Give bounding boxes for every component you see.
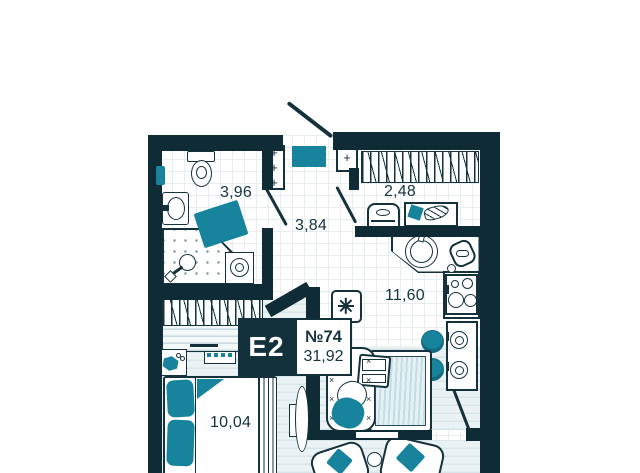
bathroom-sink-tap xyxy=(162,205,169,211)
blanket-fold xyxy=(197,379,224,399)
bed-footboard xyxy=(258,377,277,473)
kitchen-sink-inner xyxy=(410,240,433,263)
floor-plan: + + + + × × × × xyxy=(0,0,640,473)
burner-large xyxy=(448,292,464,308)
bedroom-area-label: 10,04 xyxy=(210,414,251,432)
toilet-bowl-inner xyxy=(196,166,207,179)
tv xyxy=(295,386,309,452)
hallway-area-label: 3,84 xyxy=(295,217,327,235)
balcony-wall-b xyxy=(398,430,432,440)
balcony-wall-a xyxy=(306,430,356,440)
stove-knobs xyxy=(447,285,449,294)
wall-right xyxy=(480,135,500,473)
bathroom-sink-basin xyxy=(167,197,185,220)
unit-type-badge: E2 xyxy=(238,318,295,376)
bathroom-wall-bottom xyxy=(148,284,273,300)
burner-medium2 xyxy=(464,294,477,307)
pillow xyxy=(166,420,195,467)
bathroom-wall-right-upper xyxy=(262,135,273,190)
wardrobe-handle xyxy=(190,344,218,347)
closet-wall-stub xyxy=(349,168,359,190)
closet-hanging-rail xyxy=(361,151,479,183)
stitch-marks: × × × × xyxy=(366,352,371,428)
washing-machine-door-inner xyxy=(235,263,244,272)
pillow xyxy=(166,379,195,417)
plate-inner xyxy=(455,336,464,345)
wall-left xyxy=(148,135,162,473)
glasses-icon xyxy=(180,356,185,361)
unit-number: №74 xyxy=(305,327,342,348)
plate-inner xyxy=(455,366,464,375)
burner-small xyxy=(451,280,459,288)
closet-wall-bottom xyxy=(355,226,480,237)
entrance-door-swing xyxy=(287,101,333,138)
snowflake-icon xyxy=(338,298,354,314)
cutlery xyxy=(447,332,449,341)
wall-top-right xyxy=(333,132,500,150)
suitcase-band xyxy=(371,220,395,222)
plus-icon: + xyxy=(343,151,351,164)
bathroom-wall-right-lower xyxy=(262,228,273,286)
closet-area-label: 2,48 xyxy=(384,183,416,201)
dresser-items xyxy=(207,353,233,357)
towel xyxy=(156,166,165,185)
kitchen-area-label: 11,60 xyxy=(385,287,425,305)
doormat xyxy=(292,146,326,167)
suitcase-handle xyxy=(376,209,390,216)
kettle-cup xyxy=(447,264,456,273)
balcony-window xyxy=(356,430,398,440)
cutlery xyxy=(447,362,449,371)
kettle-lid xyxy=(456,250,469,257)
unit-total-area: 31,92 xyxy=(303,347,343,367)
burner-medium xyxy=(462,278,473,289)
unit-info-badge: №74 31,92 xyxy=(295,318,352,376)
bathroom-area-label: 3,96 xyxy=(220,184,252,202)
